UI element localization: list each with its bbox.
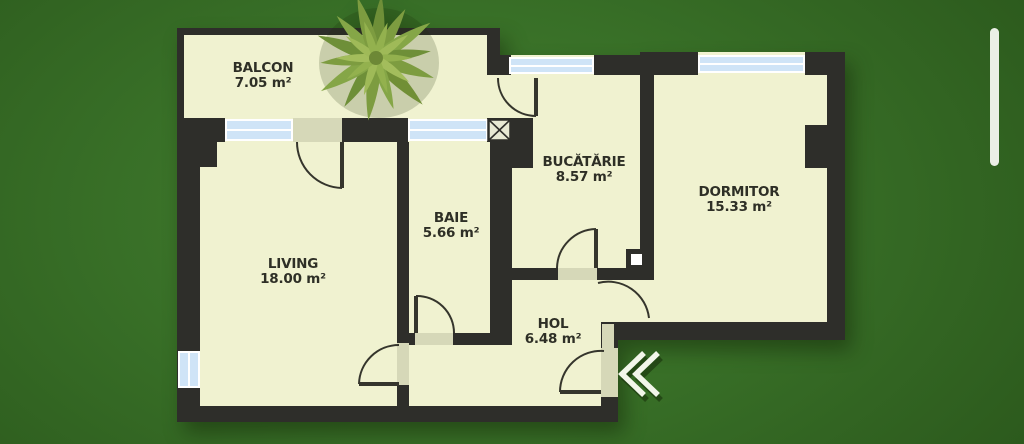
room-area: 5.66 m²: [423, 226, 480, 241]
room-label-dormitor: DORMITOR 15.33 m²: [698, 185, 779, 215]
wall-niche: [626, 249, 648, 270]
entrance-arrow-icon: [608, 346, 672, 406]
plant-icon: [296, 0, 456, 138]
room-area: 7.05 m²: [235, 76, 292, 91]
door-arc-bucatarie: [557, 229, 596, 268]
room-area: 8.57 m²: [556, 170, 613, 185]
door-arc-living-hol: [359, 345, 399, 384]
room-area: 15.33 m²: [706, 200, 772, 215]
room-area: 18.00 m²: [260, 272, 326, 287]
floor-plan: BALCON 7.05 m² LIVING 18.00 m² BAIE 5.66…: [0, 0, 1024, 444]
scrollbar-thumb[interactable]: [990, 28, 999, 166]
room-label-living: LIVING 18.00 m²: [260, 257, 326, 287]
room-name: DORMITOR: [698, 185, 779, 200]
door-arc-entrance: [560, 351, 604, 392]
door-arc-balcon-bucatarie: [498, 78, 536, 116]
room-name: BALCON: [233, 61, 294, 76]
room-label-baie: BAIE 5.66 m²: [423, 211, 480, 241]
room-label-bucatarie: BUCĂTĂRIE 8.57 m²: [542, 155, 625, 185]
room-name: BUCĂTĂRIE: [542, 155, 625, 170]
door-arc-baie: [416, 296, 454, 333]
room-area: 6.48 m²: [525, 332, 582, 347]
floorplan-viewer: BALCON 7.05 m² LIVING 18.00 m² BAIE 5.66…: [0, 0, 1024, 444]
door-arc-dormitor: [598, 282, 649, 318]
room-name: HOL: [538, 317, 569, 332]
door-arc-balcon-living: [297, 142, 342, 188]
room-label-hol: HOL 6.48 m²: [525, 317, 582, 347]
room-name: LIVING: [268, 257, 318, 272]
doors-layer: [0, 0, 1024, 444]
room-name: BAIE: [434, 211, 468, 226]
room-label-balcon: BALCON 7.05 m²: [233, 61, 294, 91]
vent-shaft-icon: [489, 120, 511, 141]
